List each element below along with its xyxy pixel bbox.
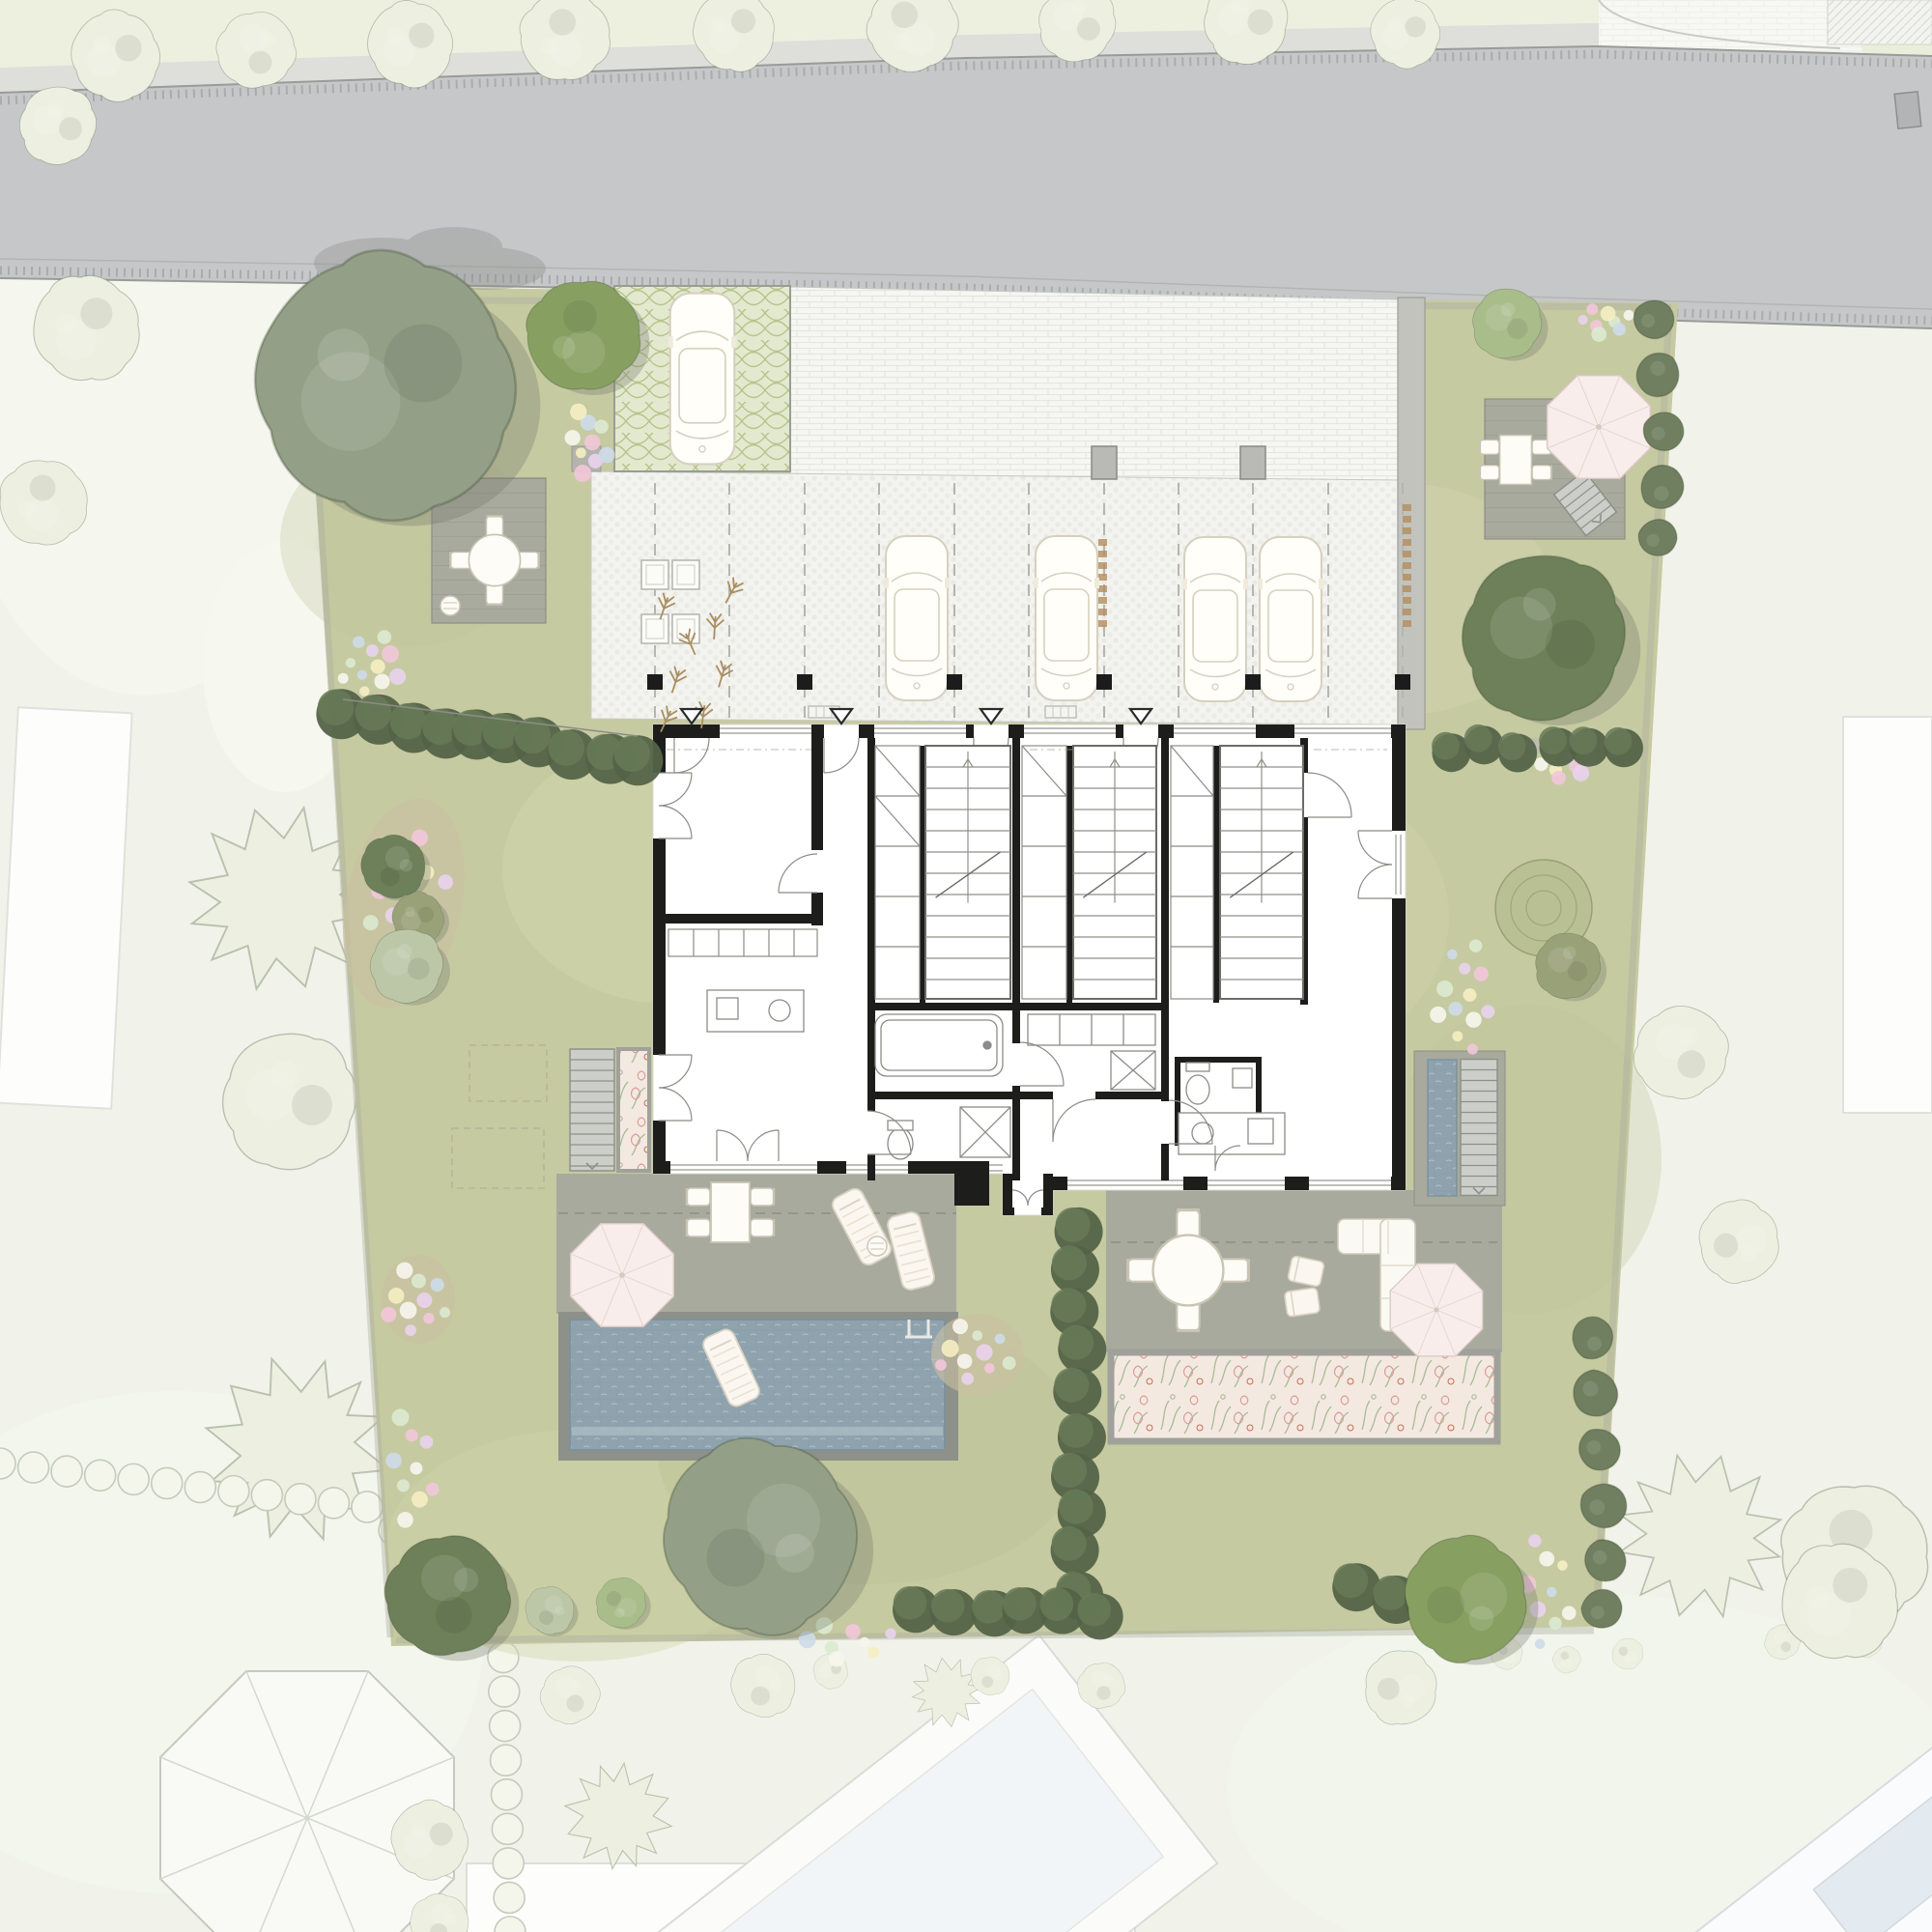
neighbor-house-east bbox=[1843, 717, 1932, 1113]
paver-tick bbox=[1098, 551, 1107, 557]
flower-dot-icon bbox=[1430, 1007, 1446, 1023]
flower-dot-icon bbox=[363, 915, 379, 930]
hedge-blob bbox=[1052, 1453, 1087, 1488]
concrete-post-icon bbox=[1240, 446, 1265, 479]
stair-exterior bbox=[1461, 1060, 1497, 1196]
hedge-shrub-icon bbox=[185, 1472, 215, 1503]
flower-dot-icon bbox=[565, 430, 581, 445]
flower-dot-icon bbox=[1562, 1606, 1577, 1621]
hedge-shrub-icon bbox=[491, 1779, 522, 1810]
site-plan: Residential site plan — ground floor wit… bbox=[0, 0, 1932, 1932]
flower-bed-south bbox=[1111, 1352, 1497, 1441]
flower-dot-icon bbox=[867, 1646, 879, 1658]
stair-interior bbox=[1220, 746, 1303, 999]
flower-dot-icon bbox=[1613, 323, 1626, 335]
hedge-blob bbox=[1605, 727, 1633, 755]
hedge-shrub-icon bbox=[318, 1488, 349, 1519]
hedge-blob bbox=[549, 729, 584, 765]
water-rill bbox=[1428, 1060, 1457, 1196]
flower-dot-icon bbox=[405, 1324, 416, 1336]
utility-box bbox=[1894, 92, 1921, 128]
hedge-blob bbox=[1432, 732, 1460, 760]
car-stall-1 bbox=[884, 536, 950, 700]
pool-shelf bbox=[572, 1427, 943, 1435]
stair-interior bbox=[1073, 746, 1156, 999]
car-stall-3 bbox=[1182, 537, 1248, 701]
hedge-blob bbox=[1077, 1593, 1111, 1627]
car-stall-4 bbox=[1258, 537, 1323, 701]
hedge-shrub-icon bbox=[352, 1492, 383, 1522]
hedge-blob bbox=[1498, 732, 1526, 760]
flower-dot-icon bbox=[976, 1344, 992, 1360]
flower-dot-icon bbox=[1469, 939, 1482, 952]
hedge-shrub-icon bbox=[492, 1813, 523, 1844]
hedge-blob bbox=[1333, 1563, 1368, 1598]
hedge-blob bbox=[1052, 1245, 1087, 1280]
flower-dot-icon bbox=[426, 1483, 440, 1496]
umbrella-icon bbox=[1390, 1264, 1483, 1356]
paver-tick bbox=[1098, 539, 1107, 546]
paver-tick bbox=[1098, 597, 1107, 604]
flower-dot-icon bbox=[1548, 1617, 1561, 1630]
hedge-blob bbox=[1056, 1207, 1091, 1242]
flower-dot-icon bbox=[1467, 1043, 1478, 1054]
flower-dot-icon bbox=[995, 1334, 1006, 1345]
paver-tick bbox=[1098, 562, 1107, 569]
flower-dot-icon bbox=[961, 1373, 974, 1385]
paver-tick bbox=[1098, 609, 1107, 615]
flower-dot-icon bbox=[346, 658, 355, 668]
paver-tick bbox=[1403, 597, 1411, 604]
car-stall-2 bbox=[1034, 536, 1099, 700]
flower-dot-icon bbox=[385, 1453, 402, 1469]
flower-dot-icon bbox=[392, 1408, 410, 1426]
planter-box-icon bbox=[672, 614, 699, 643]
flower-dot-icon bbox=[1528, 1534, 1541, 1547]
hedge-blob bbox=[1040, 1587, 1074, 1621]
flower-dot-icon bbox=[1436, 980, 1453, 997]
flower-dot-icon bbox=[366, 644, 379, 657]
flower-dot-icon bbox=[381, 1307, 396, 1322]
steel-post-icon bbox=[1245, 674, 1261, 690]
flower-dot-icon bbox=[396, 1263, 412, 1279]
hedge-blob bbox=[355, 695, 391, 730]
steel-post-icon bbox=[1096, 674, 1112, 690]
hedge-shrub-icon bbox=[18, 1452, 49, 1483]
hedge-blob bbox=[1051, 1288, 1086, 1322]
paver-tick bbox=[1403, 562, 1411, 569]
flower-dot-icon bbox=[957, 1353, 973, 1369]
hedge-shrub-icon bbox=[85, 1460, 116, 1491]
flower-dot-icon bbox=[885, 1629, 895, 1639]
planter-box-icon bbox=[641, 560, 668, 589]
planter-box-icon bbox=[672, 560, 699, 589]
neighbor-house-west bbox=[0, 707, 132, 1109]
hedge-blob bbox=[1539, 726, 1567, 754]
hedge-shrub-icon bbox=[489, 1676, 520, 1707]
flower-dot-icon bbox=[1447, 950, 1457, 959]
flower-dot-icon bbox=[357, 669, 367, 679]
flower-dot-icon bbox=[570, 404, 586, 420]
flower-dot-icon bbox=[942, 1340, 959, 1357]
flower-dot-icon bbox=[972, 1330, 982, 1341]
hedge-shrub-icon bbox=[251, 1480, 282, 1511]
flower-dot-icon bbox=[829, 1651, 844, 1666]
hedge-shrub-icon bbox=[152, 1467, 183, 1498]
flower-dot-icon bbox=[338, 673, 349, 684]
hedge-shrub-icon bbox=[218, 1476, 249, 1507]
hedge-shrub-icon bbox=[491, 1745, 522, 1776]
flower-dot-icon bbox=[397, 1512, 413, 1528]
hedge-shrub-icon bbox=[51, 1456, 82, 1487]
flower-dot-icon bbox=[416, 1293, 432, 1308]
flower-dot-icon bbox=[423, 1313, 435, 1324]
washbasin bbox=[1233, 1068, 1252, 1088]
hedge-shrub-icon bbox=[494, 1882, 525, 1913]
flower-dot-icon bbox=[935, 1359, 947, 1371]
flower-dot-icon bbox=[1463, 988, 1477, 1002]
flower-dot-icon bbox=[1459, 963, 1470, 975]
flower-dot-icon bbox=[412, 1492, 428, 1508]
flower-dot-icon bbox=[1586, 303, 1598, 315]
hedge-blob bbox=[1052, 1526, 1087, 1561]
flower-dot-icon bbox=[576, 447, 586, 458]
flower-dot-icon bbox=[1452, 1031, 1463, 1041]
paver-tick bbox=[1403, 504, 1411, 511]
hedge-blob bbox=[1059, 1413, 1094, 1448]
stair-exterior bbox=[570, 1049, 614, 1171]
hedge-shrub-icon bbox=[118, 1463, 149, 1494]
flower-dot-icon bbox=[353, 637, 364, 648]
hedge-blob bbox=[1054, 1368, 1089, 1403]
armchair-icon bbox=[1284, 1288, 1320, 1317]
hedge-blob bbox=[1373, 1576, 1407, 1610]
side-table-icon bbox=[440, 596, 460, 615]
flower-dot-icon bbox=[1547, 1587, 1557, 1598]
flower-dot-icon bbox=[584, 435, 601, 451]
flower-dot-icon bbox=[1557, 1560, 1568, 1571]
paver-tick bbox=[1403, 620, 1411, 627]
hedge-shrub-icon bbox=[285, 1484, 316, 1515]
flower-dot-icon bbox=[389, 668, 406, 685]
flower-dot-icon bbox=[984, 1363, 995, 1374]
flower-dot-icon bbox=[378, 630, 392, 644]
flower-dot-icon bbox=[1551, 771, 1566, 785]
flower-dot-icon bbox=[1578, 315, 1588, 325]
flower-dot-icon bbox=[431, 1278, 444, 1292]
stair-interior bbox=[925, 746, 1010, 999]
paver-tick bbox=[1403, 609, 1411, 615]
hedge-blob bbox=[931, 1589, 965, 1623]
flower-dot-icon bbox=[594, 419, 608, 433]
door-grate-icon bbox=[1045, 706, 1076, 718]
concrete-post-icon bbox=[1092, 446, 1117, 479]
paver-tick bbox=[1403, 574, 1411, 581]
flower-dot-icon bbox=[1624, 310, 1634, 321]
hedge-blob bbox=[894, 1586, 927, 1620]
car-carport bbox=[668, 294, 737, 465]
flower-dot-icon bbox=[375, 673, 390, 689]
paver-tick bbox=[1403, 585, 1411, 592]
flower-dot-icon bbox=[440, 1307, 450, 1318]
steel-post-icon bbox=[647, 674, 663, 690]
flower-dot-icon bbox=[406, 1429, 418, 1441]
hedge-blob bbox=[1570, 726, 1598, 754]
flower-dot-icon bbox=[1003, 1356, 1016, 1370]
hedge-shrub-icon bbox=[490, 1711, 521, 1742]
hedge-blob bbox=[614, 735, 650, 771]
flower-dot-icon bbox=[410, 1463, 422, 1475]
flower-dot-icon bbox=[574, 465, 591, 482]
hedge-blob bbox=[1059, 1490, 1094, 1524]
flower-dot-icon bbox=[1474, 967, 1489, 981]
planter-box-icon bbox=[641, 614, 668, 643]
flower-dot-icon bbox=[412, 1274, 426, 1289]
flower-dot-icon bbox=[382, 645, 399, 663]
flower-dot-icon bbox=[1535, 1638, 1546, 1649]
flower-dot-icon bbox=[359, 686, 369, 696]
paver-tick bbox=[1098, 585, 1107, 592]
flower-dot-icon bbox=[1601, 306, 1616, 322]
flower-dot-icon bbox=[1481, 1005, 1494, 1018]
flower-dot-icon bbox=[845, 1624, 861, 1639]
flower-dot-icon bbox=[599, 447, 615, 464]
flower-dot-icon bbox=[1539, 1551, 1554, 1567]
flower-dot-icon bbox=[400, 1302, 417, 1320]
paver-tick bbox=[1403, 527, 1411, 534]
site-plan-canvas: Residential site plan — ground floor wit… bbox=[0, 0, 1932, 1932]
flower-dot-icon bbox=[1573, 765, 1589, 781]
flower-dot-icon bbox=[952, 1319, 968, 1334]
side-table-icon bbox=[867, 1236, 887, 1256]
steel-post-icon bbox=[1395, 674, 1410, 690]
flower-strip-west bbox=[618, 1049, 649, 1171]
paver-tick bbox=[1403, 516, 1411, 523]
flower-dot-icon bbox=[371, 659, 385, 673]
hedge-blob bbox=[1464, 724, 1492, 753]
hedge-blob bbox=[1003, 1587, 1037, 1621]
paver-tick bbox=[1403, 539, 1411, 546]
flower-dot-icon bbox=[388, 1288, 405, 1304]
umbrella-icon bbox=[571, 1224, 674, 1327]
flower-dot-icon bbox=[1591, 327, 1606, 342]
hedge-shrub-icon bbox=[493, 1848, 524, 1879]
umbrella-icon bbox=[1548, 376, 1651, 479]
hedge-blob bbox=[972, 1590, 1006, 1624]
flower-dot-icon bbox=[438, 874, 453, 890]
steel-post-icon bbox=[797, 674, 812, 690]
hedge-blob bbox=[1059, 1325, 1094, 1360]
toilet-2 bbox=[1186, 1075, 1209, 1104]
steel-post-icon bbox=[947, 674, 962, 690]
neighbor-roof-hatch bbox=[1828, 0, 1932, 44]
paver-tick bbox=[1403, 551, 1411, 557]
flower-dot-icon bbox=[1448, 1002, 1463, 1016]
flower-dot-icon bbox=[420, 1435, 434, 1449]
paver-tick bbox=[1098, 620, 1107, 627]
hedge-blob bbox=[318, 690, 354, 725]
flower-dot-icon bbox=[397, 1479, 410, 1492]
flower-dot-icon bbox=[1465, 1011, 1481, 1027]
paver-tick bbox=[1098, 574, 1107, 581]
flower-dot-icon bbox=[860, 1637, 869, 1647]
